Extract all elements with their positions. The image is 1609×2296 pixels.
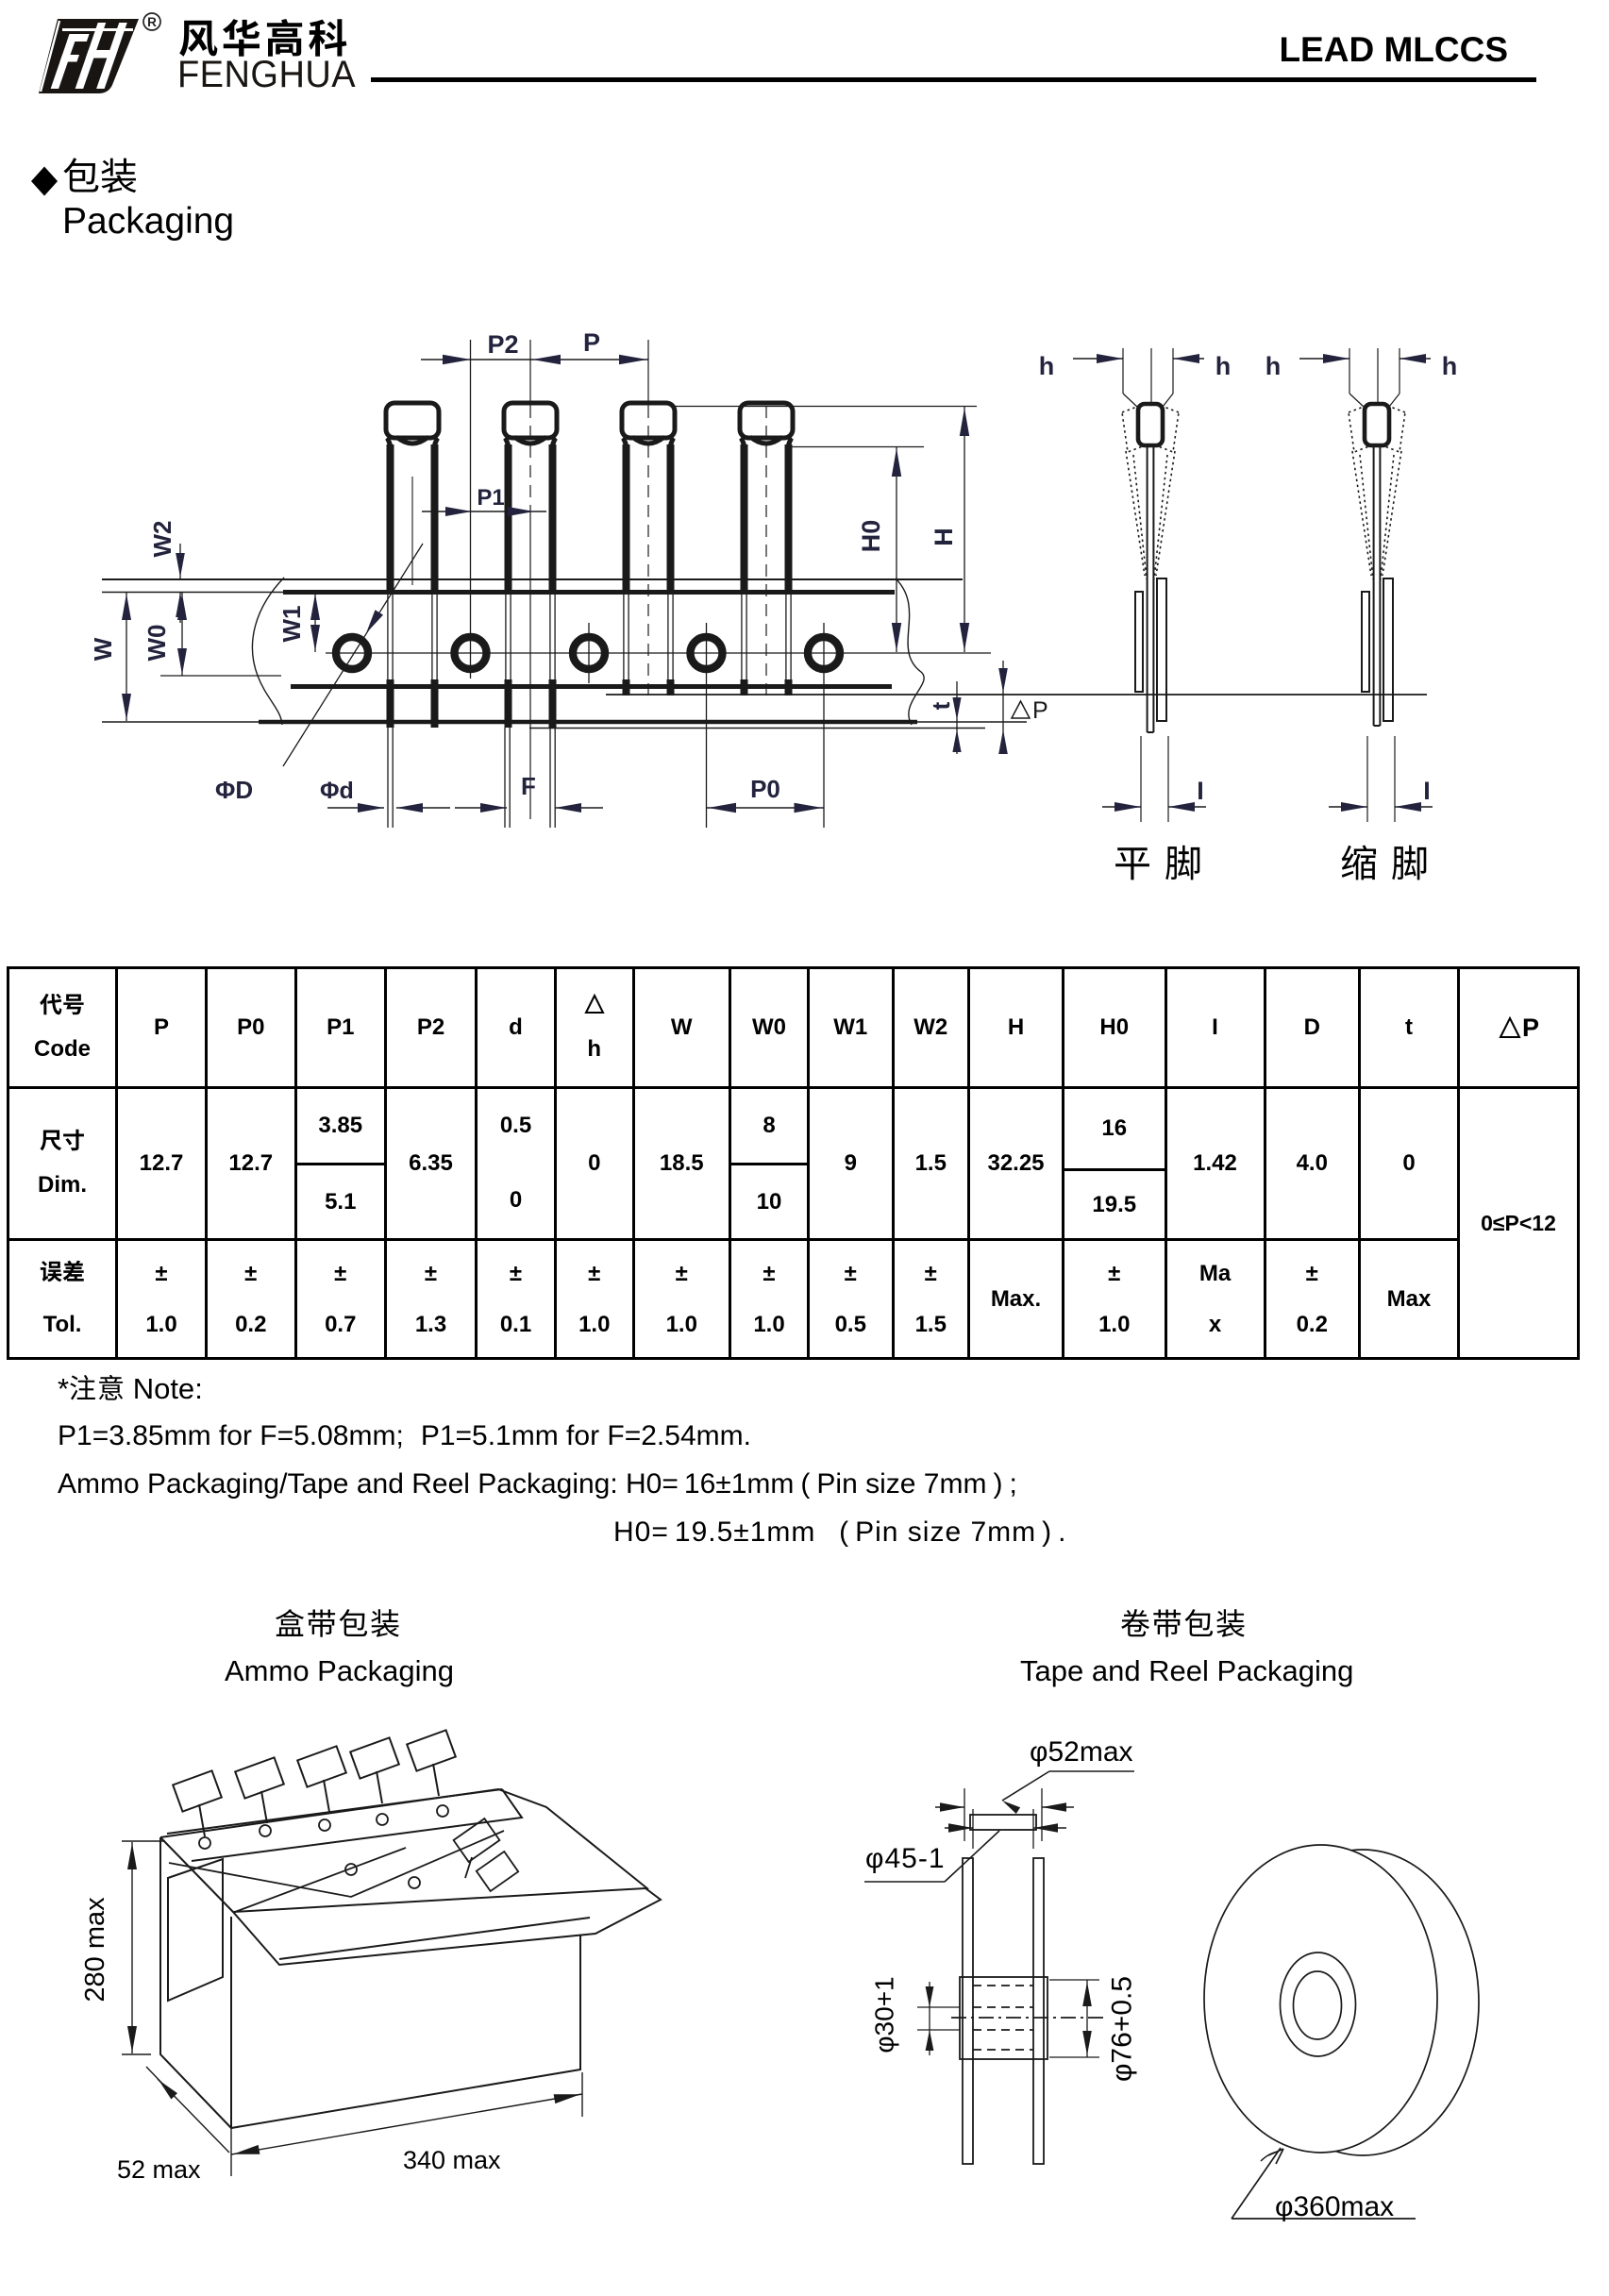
svg-text:φ76+0.5: φ76+0.5 bbox=[1107, 1976, 1138, 2082]
svg-text:φ30+1: φ30+1 bbox=[870, 1976, 899, 2053]
svg-text:φ52max: φ52max bbox=[1030, 1736, 1133, 1768]
svg-text:φ360max: φ360max bbox=[1275, 2191, 1394, 2222]
svg-text:340 max: 340 max bbox=[403, 2146, 501, 2174]
svg-text:φ45-1: φ45-1 bbox=[865, 1843, 946, 1874]
svg-text:52 max: 52 max bbox=[117, 2155, 201, 2184]
svg-text:280 max: 280 max bbox=[80, 1897, 110, 2003]
